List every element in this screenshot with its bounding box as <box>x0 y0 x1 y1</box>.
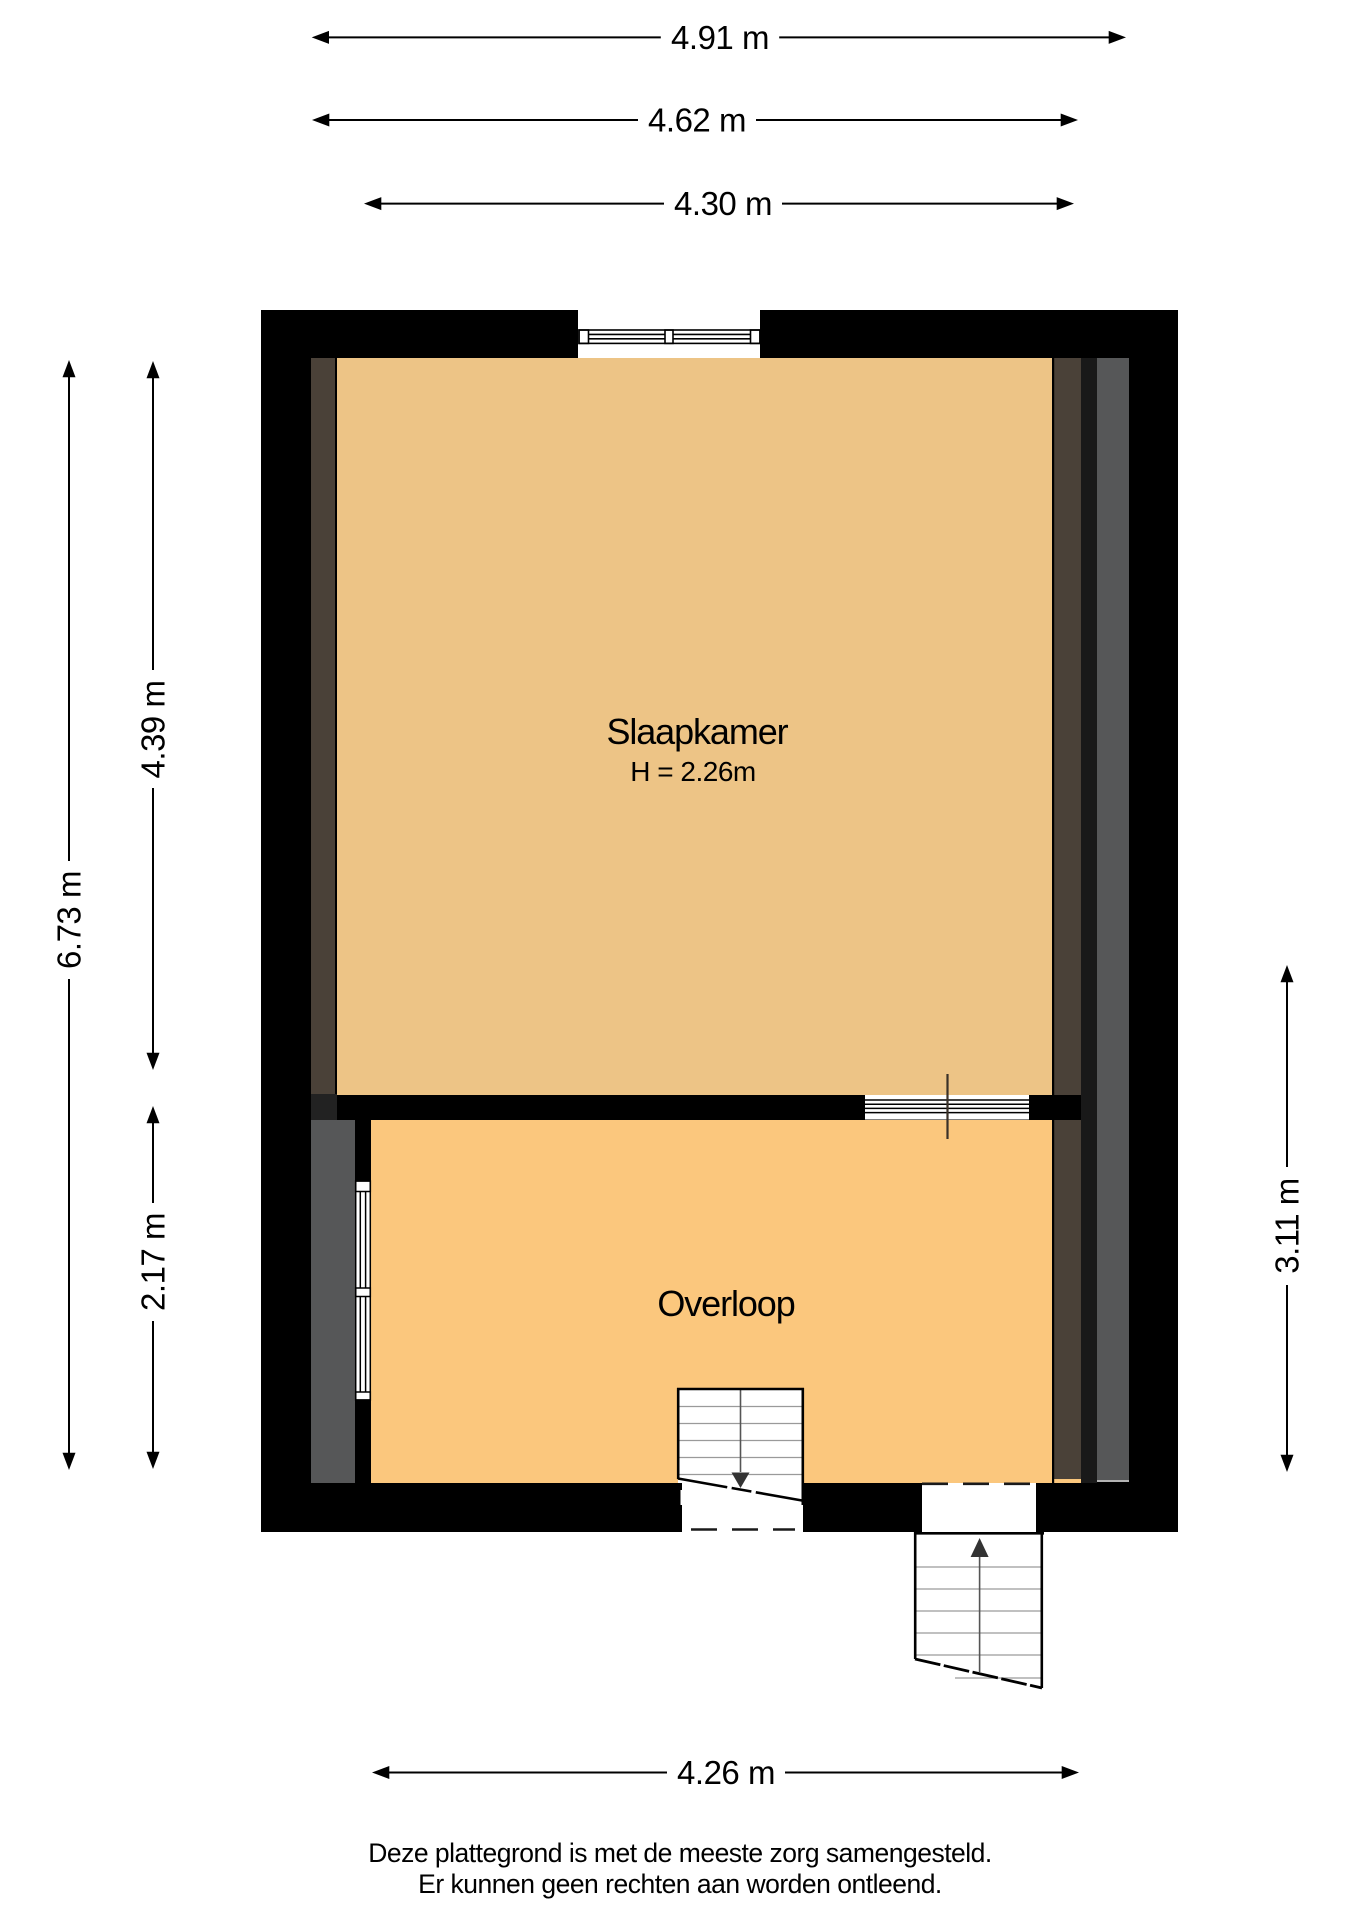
svg-text:H = 2.26m: H = 2.26m <box>630 756 755 787</box>
svg-text:3.11 m: 3.11 m <box>1268 1178 1305 1273</box>
svg-text:4.62 m: 4.62 m <box>648 101 746 138</box>
svg-text:4.91 m: 4.91 m <box>671 19 769 56</box>
svg-text:Er kunnen geen rechten aan wor: Er kunnen geen rechten aan worden ontlee… <box>418 1869 942 1899</box>
svg-text:Overloop: Overloop <box>657 1283 794 1324</box>
svg-text:6.73 m: 6.73 m <box>50 871 87 969</box>
svg-text:Deze plattegrond is met de mee: Deze plattegrond is met de meeste zorg s… <box>368 1838 992 1868</box>
svg-text:2.17 m: 2.17 m <box>134 1213 171 1311</box>
svg-text:4.26 m: 4.26 m <box>677 1754 775 1791</box>
svg-text:4.30 m: 4.30 m <box>674 185 772 222</box>
svg-text:Slaapkamer: Slaapkamer <box>606 711 788 752</box>
svg-text:4.39 m: 4.39 m <box>134 681 171 779</box>
